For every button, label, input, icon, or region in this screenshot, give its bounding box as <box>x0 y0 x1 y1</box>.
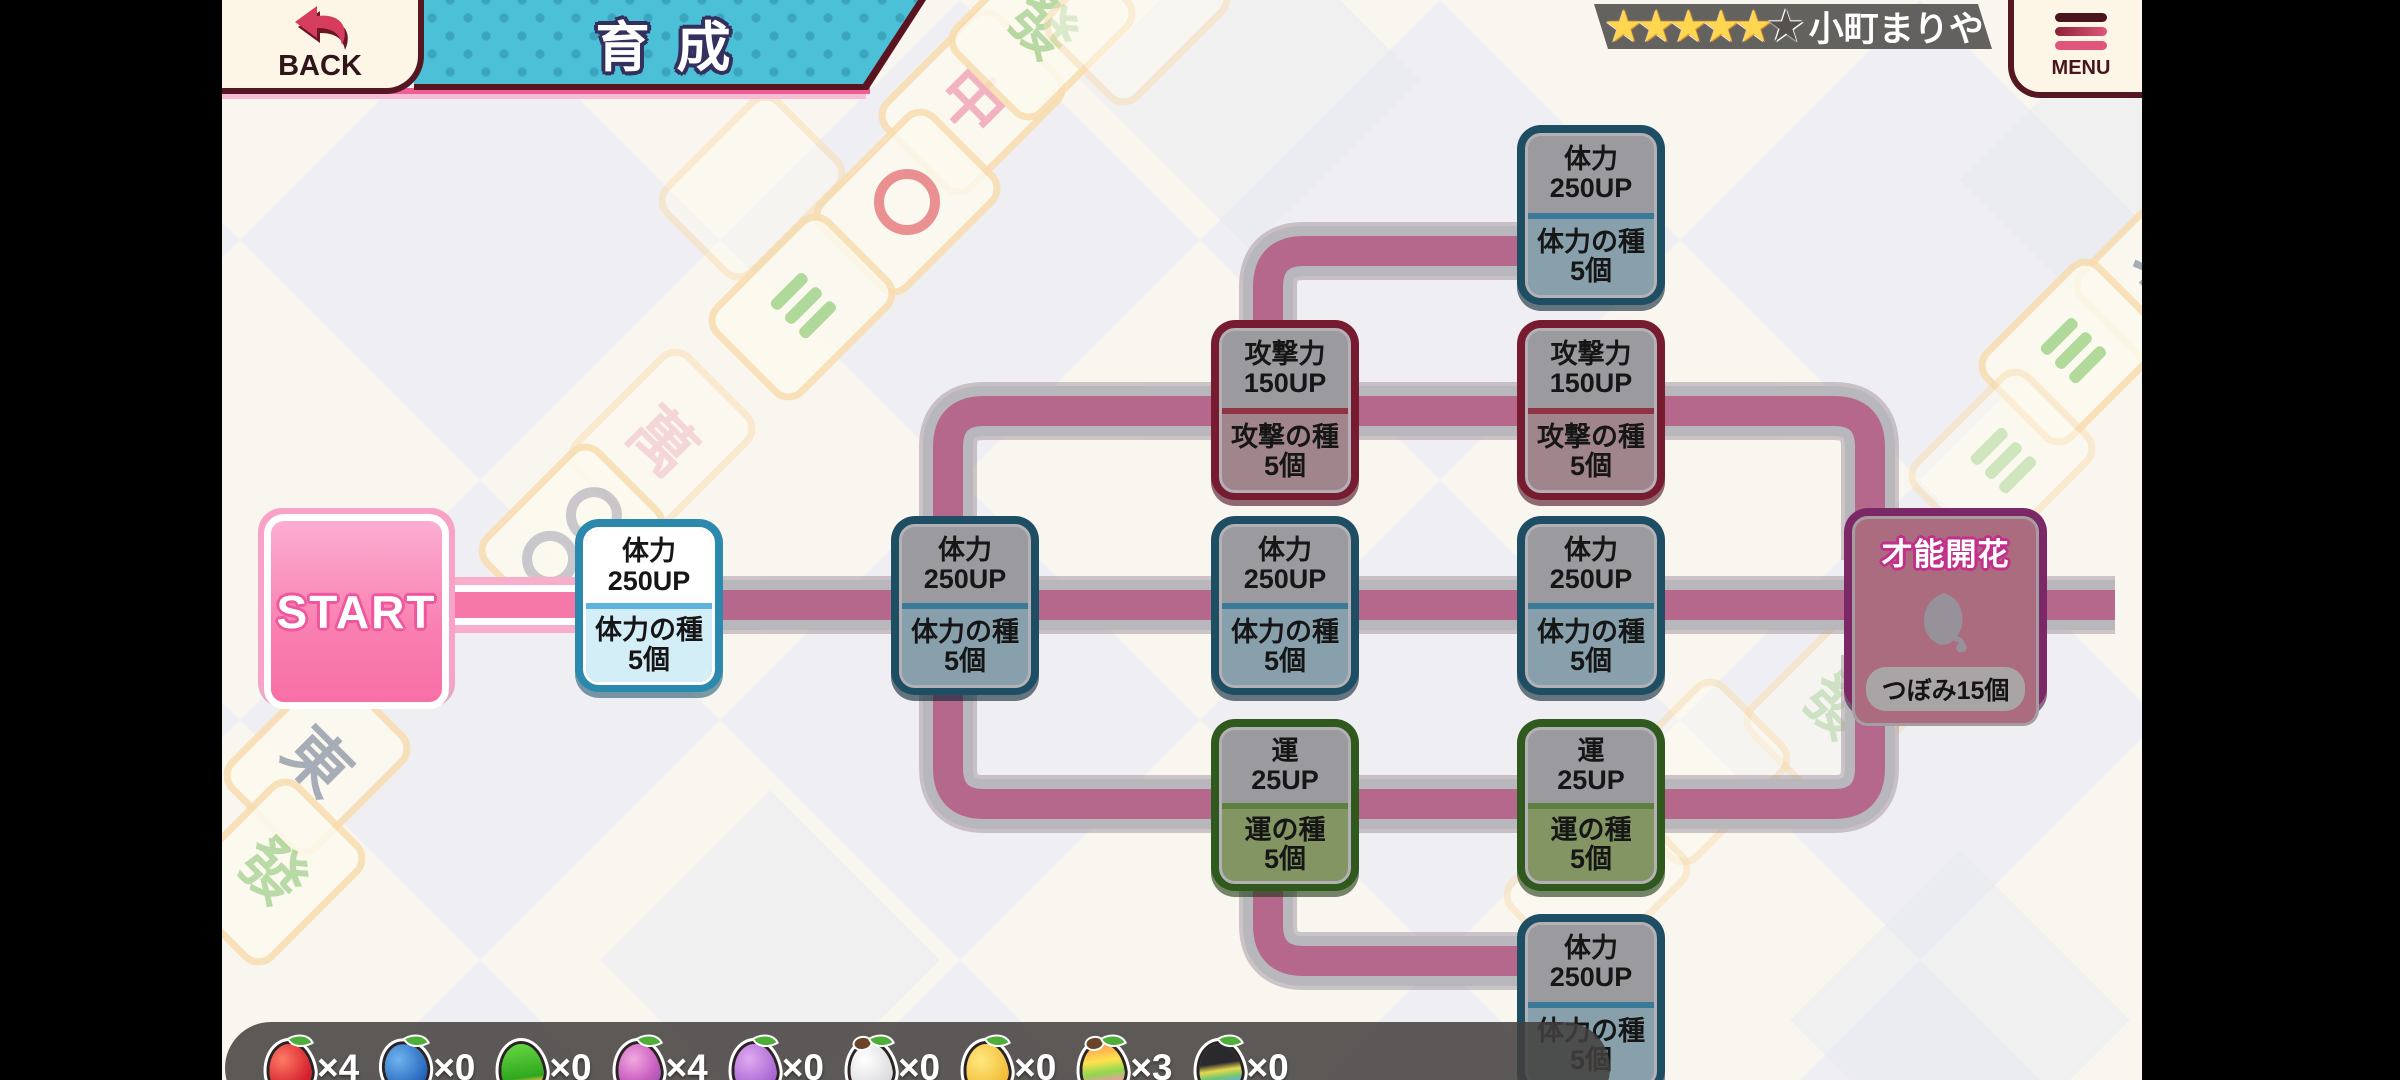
node-cost: 体力の種 <box>1537 228 1645 257</box>
node-boost: 150UP <box>1244 369 1327 398</box>
leaf-icon <box>870 1031 892 1051</box>
training-screen: 中 發 萬 東 發 北 發 <box>0 0 2400 1080</box>
node-qty: 5個 <box>1570 257 1612 286</box>
item-white-fruit: ×0 <box>850 1044 940 1080</box>
back-arrow-icon <box>283 0 357 52</box>
purple-bud-icon <box>731 1041 779 1080</box>
goal-title: 才能開花 <box>1882 529 2010 574</box>
item-red-seed: ×4 <box>269 1044 359 1080</box>
node-qty: 5個 <box>1264 452 1306 481</box>
item-purple-bud: ×0 <box>734 1044 824 1080</box>
rainbow-fruit-icon <box>1079 1041 1127 1080</box>
node-qty: 5個 <box>1570 845 1612 874</box>
title-banner: 育 成 <box>414 0 918 84</box>
node-cost: 体力の種 <box>595 616 703 645</box>
leaf-icon <box>638 1031 660 1051</box>
item-count: ×0 <box>433 1047 475 1080</box>
node-cost: 体力の種 <box>1231 618 1339 647</box>
stem-icon <box>1086 1037 1103 1050</box>
item-blue-seed: ×0 <box>385 1044 475 1080</box>
node-boost: 25UP <box>1251 766 1319 795</box>
node-cost: 攻撃の種 <box>1537 423 1645 452</box>
item-count: ×0 <box>1014 1047 1056 1080</box>
start-node-body: START <box>264 514 449 709</box>
start-node[interactable]: START <box>258 508 455 701</box>
menu-button[interactable]: MENU <box>2008 0 2148 98</box>
pink-bud-icon <box>614 1041 662 1080</box>
node-stat: 運 <box>1272 737 1299 766</box>
node-body: 攻撃力150UP 攻撃の種5個 <box>1525 328 1657 493</box>
node-stat: 運 <box>1578 737 1605 766</box>
item-yellow-fruit: ×0 <box>966 1044 1056 1080</box>
hamburger-icon <box>2055 41 2107 50</box>
node-qty: 5個 <box>1264 845 1306 874</box>
hamburger-icon <box>2055 13 2107 22</box>
skill-node-hp-locked[interactable]: 体力250UP 体力の種5個 <box>1517 516 1665 695</box>
node-body: 運25UP 運の種5個 <box>1219 727 1351 884</box>
green-seed-icon <box>498 1041 546 1080</box>
goal-cost-pill: つぼみ15個 <box>1866 667 2026 711</box>
item-pink-bud: ×4 <box>618 1044 708 1080</box>
star-empty-icon: ★ <box>1766 5 1805 49</box>
item-count: ×0 <box>1247 1047 1289 1080</box>
start-label: START <box>277 585 437 639</box>
node-boost: 250UP <box>608 567 691 596</box>
back-label: BACK <box>278 50 362 83</box>
skill-node-atk-locked[interactable]: 攻撃力150UP 攻撃の種5個 <box>1517 320 1665 500</box>
node-body: 体力250UP 体力の種5個 <box>583 527 715 685</box>
skill-node-luck-locked[interactable]: 運25UP 運の種5個 <box>1211 719 1359 891</box>
node-stat: 体力 <box>938 536 992 565</box>
leaf-icon <box>406 1031 428 1051</box>
node-qty: 5個 <box>1570 647 1612 676</box>
node-cost: 体力の種 <box>911 618 1019 647</box>
skill-node-hp-locked[interactable]: 体力250UP 体力の種5個 <box>891 516 1039 695</box>
hamburger-icon <box>2055 27 2107 36</box>
leaf-icon <box>1103 1031 1125 1051</box>
node-boost: 250UP <box>1550 963 1633 992</box>
red-seed-icon <box>266 1041 314 1080</box>
node-stat: 体力 <box>1564 536 1618 565</box>
item-count: ×0 <box>549 1047 591 1080</box>
skill-node-hp-locked[interactable]: 体力250UP 体力の種5個 <box>1517 125 1665 305</box>
blue-seed-icon <box>382 1041 430 1080</box>
character-name: 小町まりや <box>1809 1 1984 52</box>
menu-label: MENU <box>2052 57 2111 80</box>
leaf-icon <box>1219 1031 1241 1051</box>
node-boost: 150UP <box>1550 369 1633 398</box>
node-body: 攻撃力150UP 攻撃の種5個 <box>1219 328 1351 493</box>
node-qty: 5個 <box>628 646 670 675</box>
goal-node-talent-bloom[interactable]: 才能開花 つぼみ15個 <box>1844 508 2047 711</box>
leaf-icon <box>986 1031 1008 1051</box>
white-fruit-icon <box>847 1041 895 1080</box>
skill-node-hp-available[interactable]: 体力250UP 体力の種5個 <box>575 519 723 692</box>
character-rating-pill: ★ ★ ★ ★ ★ ★ 小町まりや <box>1594 4 1992 49</box>
stem-icon <box>854 1037 871 1050</box>
node-boost: 250UP <box>1550 174 1633 203</box>
node-boost: 250UP <box>924 565 1007 594</box>
yellow-fruit-icon <box>963 1041 1011 1080</box>
seed-inventory-bar: ×4 ×0 ×0 ×4 ×0 ×0 ×0 ×3 <box>225 1022 1610 1080</box>
node-stat: 体力 <box>1258 536 1312 565</box>
node-stat: 体力 <box>1564 145 1618 174</box>
node-boost: 250UP <box>1550 565 1633 594</box>
flower-bud-icon <box>1913 590 1979 652</box>
back-button[interactable]: BACK <box>222 0 424 94</box>
node-stat: 攻撃力 <box>1245 340 1326 369</box>
node-body: 才能開花 つぼみ15個 <box>1852 516 2039 726</box>
item-rainbow-fruit: ×3 <box>1082 1044 1172 1080</box>
node-stat: 攻撃力 <box>1551 340 1632 369</box>
item-count: ×4 <box>666 1047 708 1080</box>
header-underline-lightpink <box>222 94 866 99</box>
node-cost: 運の種 <box>1245 816 1326 845</box>
leaf-icon <box>754 1031 776 1051</box>
black-rainbow-fruit-icon <box>1195 1041 1243 1080</box>
node-body: 運25UP 運の種5個 <box>1525 727 1657 884</box>
item-count: ×0 <box>898 1047 940 1080</box>
node-body: 体力250UP 体力の種5個 <box>1525 524 1657 688</box>
leaf-icon <box>289 1031 311 1051</box>
node-cost: 攻撃の種 <box>1231 423 1339 452</box>
page-title: 育 成 <box>595 3 736 82</box>
skill-node-atk-locked[interactable]: 攻撃力150UP 攻撃の種5個 <box>1211 320 1359 500</box>
letterbox-left <box>0 0 222 1080</box>
item-green-seed: ×0 <box>501 1044 591 1080</box>
node-qty: 5個 <box>1570 452 1612 481</box>
node-cost: 体力の種 <box>1537 618 1645 647</box>
item-black-rainbow-fruit: ×0 <box>1199 1044 1289 1080</box>
node-body: 体力250UP 体力の種5個 <box>1219 524 1351 688</box>
node-cost: 運の種 <box>1551 816 1632 845</box>
node-qty: 5個 <box>1264 647 1306 676</box>
item-count: ×4 <box>317 1047 359 1080</box>
item-count: ×0 <box>782 1047 824 1080</box>
letterbox-right <box>2142 0 2400 1080</box>
node-boost: 250UP <box>1244 565 1327 594</box>
node-body: 体力250UP 体力の種5個 <box>1525 133 1657 298</box>
node-stat: 体力 <box>1564 934 1618 963</box>
node-stat: 体力 <box>622 537 676 566</box>
skill-node-hp-locked[interactable]: 体力250UP 体力の種5個 <box>1211 516 1359 695</box>
node-boost: 25UP <box>1557 766 1625 795</box>
skill-node-luck-locked[interactable]: 運25UP 運の種5個 <box>1517 719 1665 891</box>
node-qty: 5個 <box>944 647 986 676</box>
node-body: 体力250UP 体力の種5個 <box>899 524 1031 688</box>
item-count: ×3 <box>1130 1047 1172 1080</box>
